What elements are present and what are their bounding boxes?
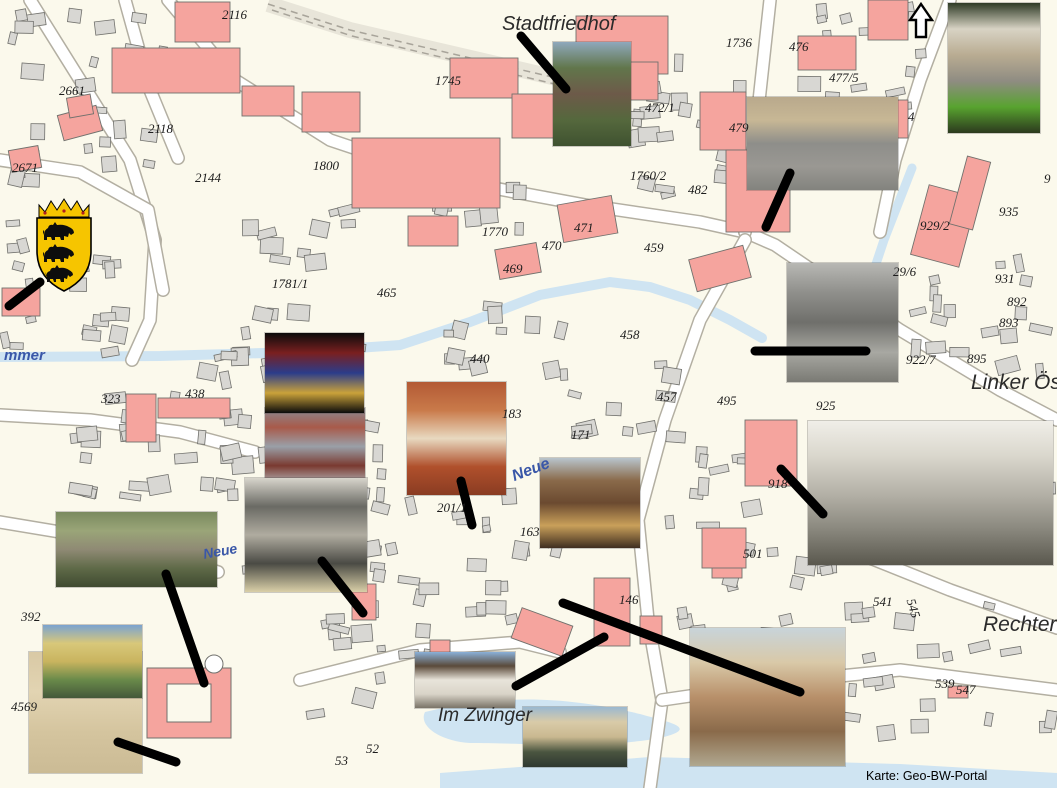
photo-half-timbered-lane: [540, 458, 640, 548]
parcel-label: 1800: [313, 159, 339, 172]
parcel-label: 482: [688, 183, 708, 196]
parcel-label: 470: [542, 239, 562, 252]
north-arrow: [905, 1, 937, 41]
parcel-label: 183: [502, 407, 522, 420]
photo-rooftops-aerial: [407, 382, 506, 495]
photo-im-zwinger-house: [415, 652, 515, 708]
baden-wuerttemberg-coat-of-arms: [28, 197, 100, 297]
parcel-label: 2118: [148, 122, 173, 135]
parcel-label: 471: [574, 221, 594, 234]
photo-engraving-historic-scene: [245, 478, 367, 592]
parcel-label: 457: [657, 390, 677, 403]
photo-street-historic-bw: [787, 263, 898, 382]
parcel-label: 4569: [11, 700, 37, 713]
parcel-label: 476: [789, 40, 809, 53]
parcel-label: 2661: [59, 84, 85, 97]
photo-stadtfriedhof-grave-monument: [553, 42, 631, 146]
photo-postcard-street: [690, 628, 845, 766]
parcel-label: 52: [366, 742, 379, 755]
parcel-label: 458: [620, 328, 640, 341]
parcel-label: 918: [768, 477, 788, 490]
parcel-label: 469: [503, 262, 523, 275]
place-label: Rechter Ös: [983, 614, 1057, 635]
parcel-label: 922/7: [906, 353, 936, 366]
parcel-label: 29/6: [893, 265, 916, 278]
parcel-label: 1736: [726, 36, 752, 49]
photo-castle-gate-hohentuebingen: [56, 512, 217, 587]
place-label: Im Zwinger: [438, 706, 532, 725]
parcel-label: 2671: [12, 161, 38, 174]
place-label: mmer: [4, 348, 45, 363]
photo-rathaus-facade: [265, 408, 365, 485]
parcel-label: 1760/2: [630, 169, 666, 182]
parcel-label: 931: [995, 272, 1015, 285]
photo-neckarfront-houses: [523, 707, 627, 767]
map-credit: Karte: Geo-BW-Portal: [866, 770, 987, 783]
photo-yellow-manor-house: [43, 625, 142, 698]
parcel-label: 935: [999, 205, 1019, 218]
photo-stained-glass-window: [265, 333, 364, 413]
photo-fountain-square: [747, 97, 898, 190]
map-composite: 21162661267121182144180017451736476477/5…: [0, 0, 1057, 788]
parcel-label: 929/2: [920, 219, 950, 232]
parcel-label: 438: [185, 387, 205, 400]
parcel-label: 893: [999, 316, 1019, 329]
place-label: Stadtfriedhof: [502, 14, 615, 34]
parcel-label: 201/1: [437, 501, 467, 514]
parcel-label: 501: [743, 547, 763, 560]
place-label: Linker Öster: [971, 372, 1057, 393]
parcel-label: 171: [571, 428, 591, 441]
parcel-label: 1781/1: [272, 277, 308, 290]
parcel-label: 479: [729, 121, 749, 134]
parcel-label: 895: [967, 352, 987, 365]
parcel-label: 547: [956, 683, 976, 696]
parcel-label: 146: [619, 593, 639, 606]
parcel-label: 495: [717, 394, 737, 407]
parcel-label: 2116: [222, 8, 247, 21]
parcel-label: 539: [935, 677, 955, 690]
parcel-label: 472/1: [645, 101, 675, 114]
parcel-label: 541: [873, 595, 893, 608]
parcel-label: 1745: [435, 74, 461, 87]
parcel-label: 163: [520, 525, 540, 538]
basemap: [0, 0, 1057, 788]
parcel-label: 323: [101, 392, 121, 405]
parcel-label: 440: [470, 352, 490, 365]
parcel-label: 925: [816, 399, 836, 412]
photo-bebenhausen-monastery: [948, 3, 1040, 133]
parcel-label: 459: [644, 241, 664, 254]
parcel-label: 4: [908, 110, 915, 123]
parcel-label: 9: [1044, 172, 1051, 185]
parcel-label: 892: [1007, 295, 1027, 308]
parcel-label: 465: [377, 286, 397, 299]
parcel-label: 477/5: [829, 71, 859, 84]
parcel-label: 392: [21, 610, 41, 623]
photo-schloss-engraving: [808, 421, 1053, 565]
parcel-label: 53: [335, 754, 348, 767]
parcel-label: 1770: [482, 225, 508, 238]
parcel-label: 2144: [195, 171, 221, 184]
